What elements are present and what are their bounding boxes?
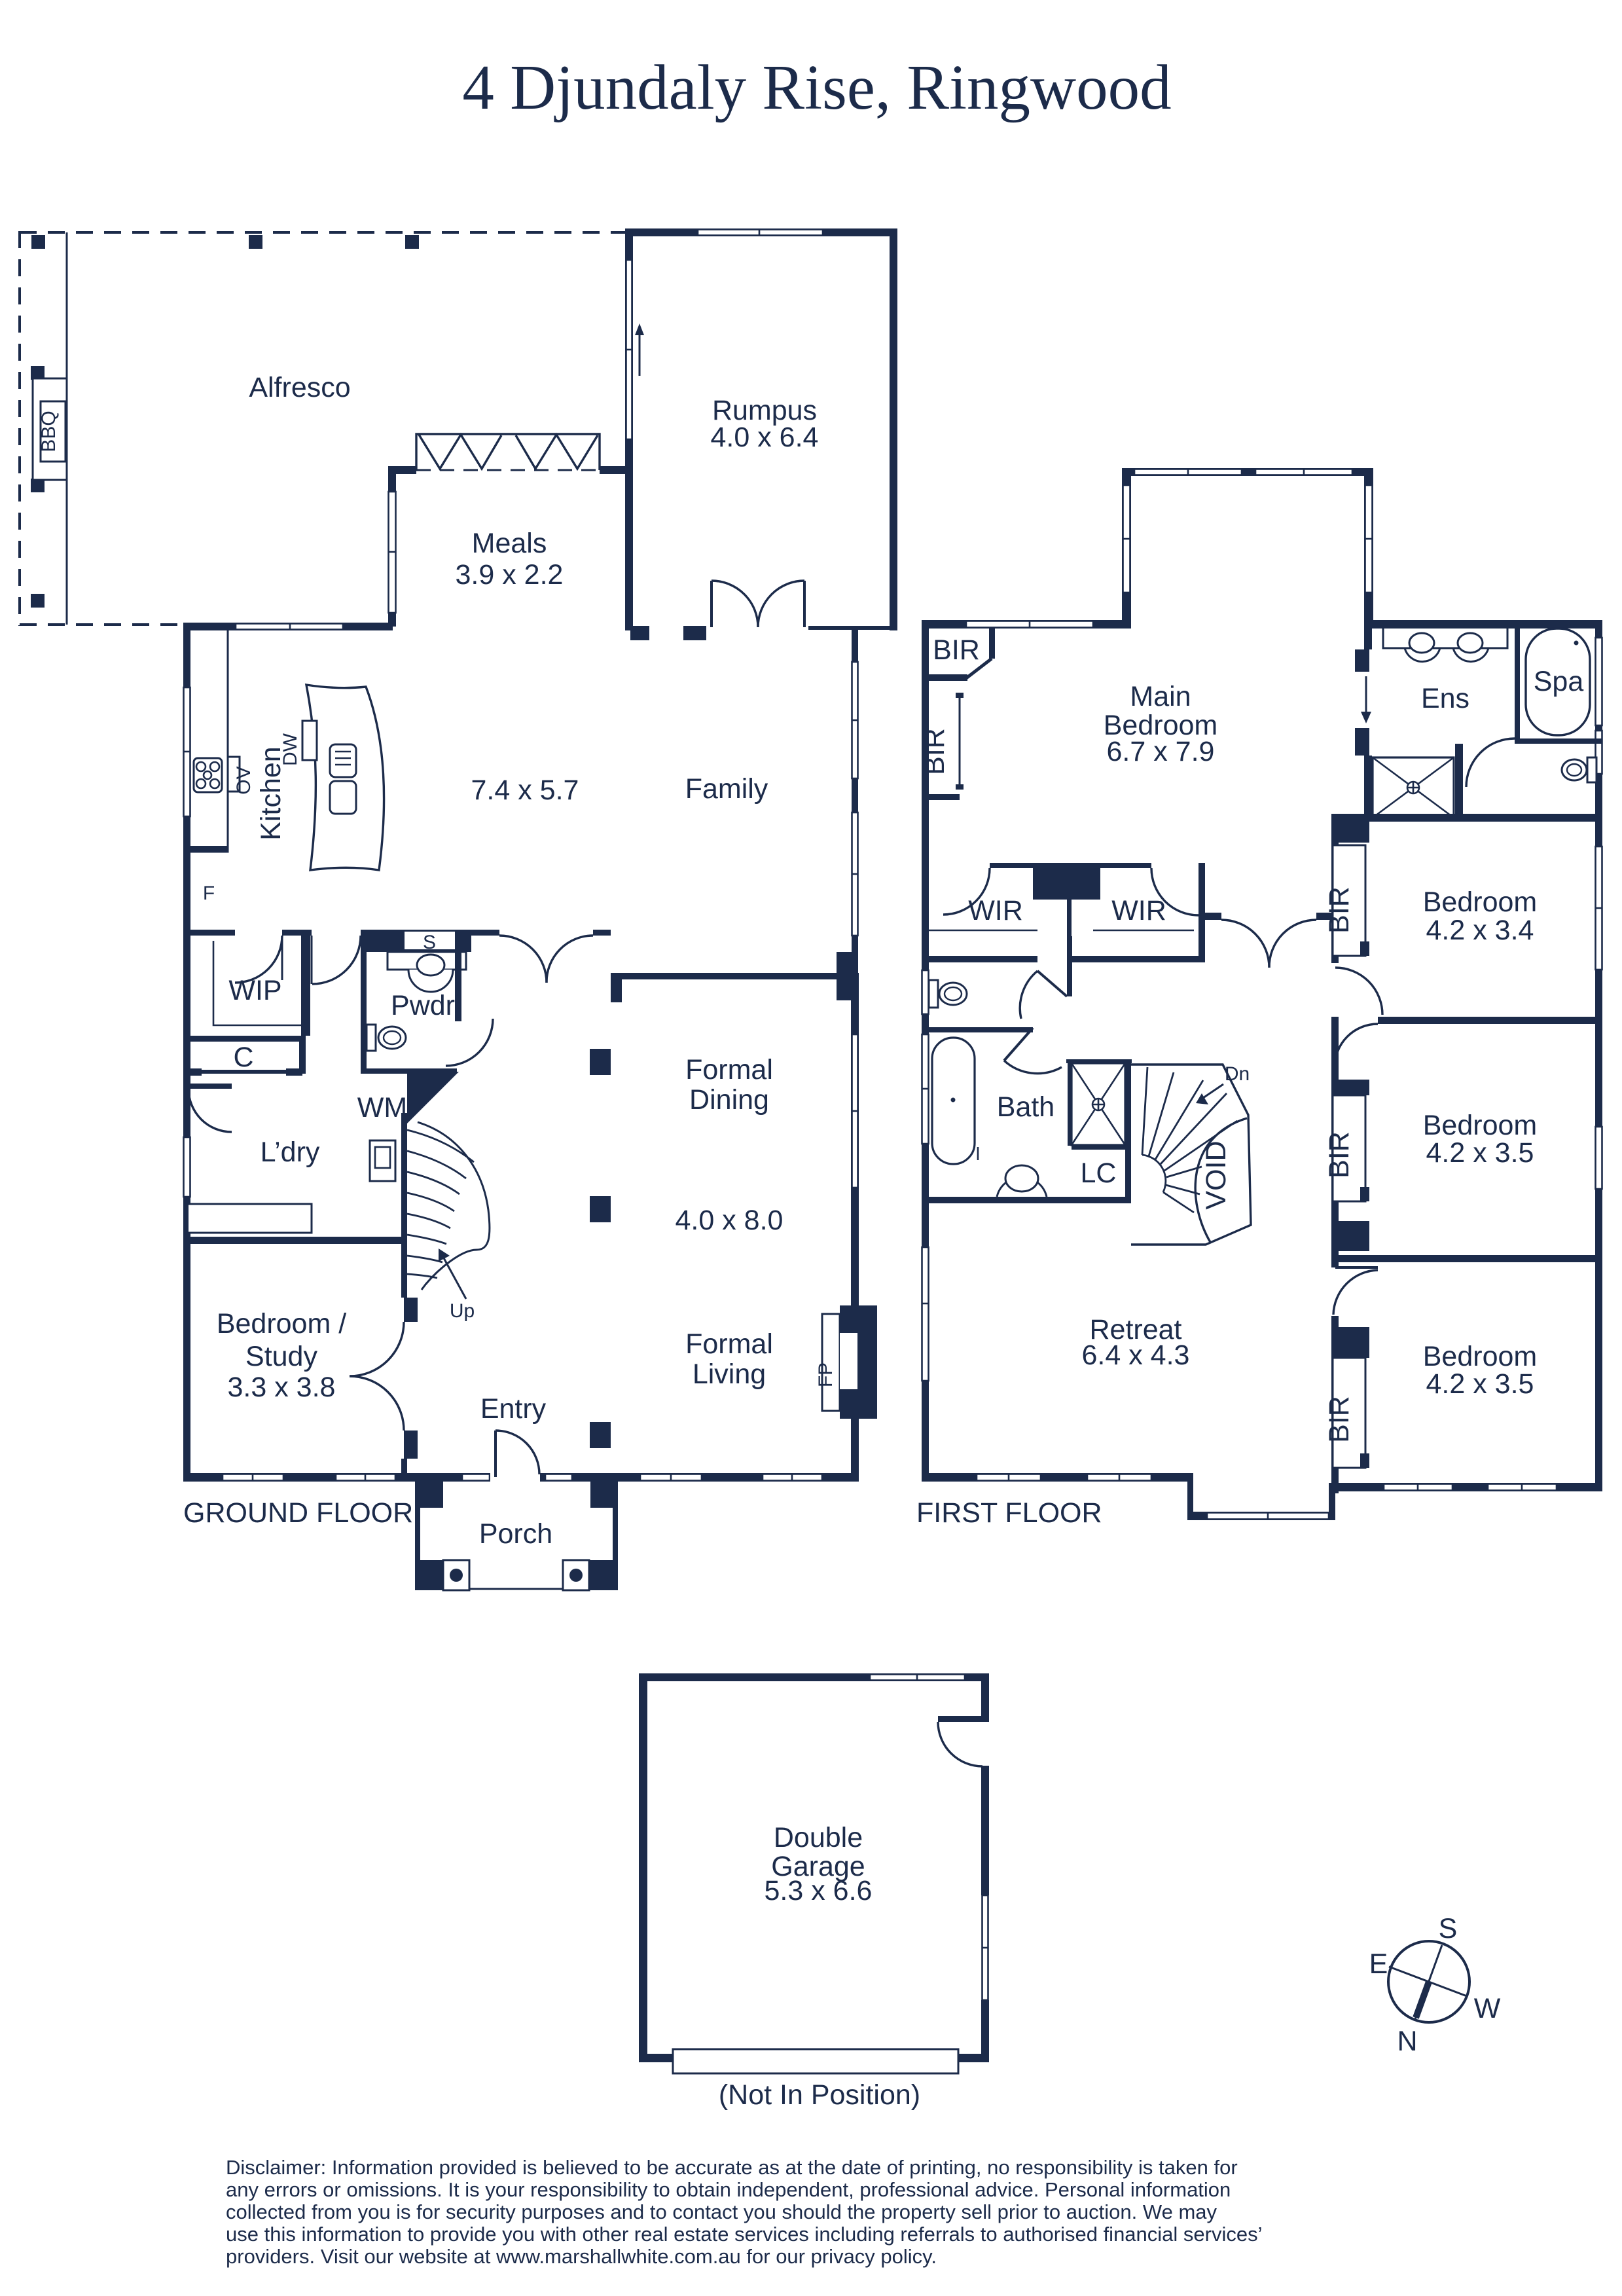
svg-text:WIR: WIR [1111, 895, 1166, 926]
svg-text:BIR: BIR [919, 728, 950, 775]
svg-text:Ens: Ens [1421, 683, 1469, 714]
svg-text:W: W [1474, 1993, 1501, 2024]
svg-text:4.0 x 8.0: 4.0 x 8.0 [676, 1205, 784, 1236]
svg-text:Alfresco: Alfresco [249, 372, 350, 403]
svg-text:4.2 x 3.4: 4.2 x 3.4 [1426, 915, 1534, 946]
svg-text:Meals: Meals [472, 528, 547, 559]
svg-text:Porch: Porch [479, 1518, 552, 1550]
svg-text:BBQ: BBQ [38, 410, 60, 452]
svg-text:Bedroom: Bedroom [1423, 1110, 1537, 1141]
svg-text:(Not In Position): (Not In Position) [719, 2079, 920, 2111]
svg-text:C: C [233, 1042, 253, 1073]
svg-text:GROUND FLOOR: GROUND FLOOR [183, 1497, 413, 1529]
svg-text:4.2 x 3.5: 4.2 x 3.5 [1426, 1137, 1534, 1169]
svg-text:Family: Family [685, 773, 768, 805]
svg-text:WM: WM [357, 1092, 407, 1123]
svg-text:BIR: BIR [1324, 1131, 1355, 1178]
svg-text:Bedroom /: Bedroom / [217, 1308, 346, 1339]
svg-text:L’dry: L’dry [261, 1137, 320, 1168]
svg-text:Main: Main [1130, 681, 1191, 712]
svg-text:providers. Visit our website a: providers. Visit our website at www.mars… [226, 2245, 937, 2268]
svg-text:S: S [423, 932, 436, 953]
svg-text:Double: Double [774, 1822, 863, 1853]
svg-text:VOID: VOID [1200, 1140, 1232, 1209]
svg-text:FIRST FLOOR: FIRST FLOOR [916, 1497, 1102, 1529]
svg-text:6.4 x 4.3: 6.4 x 4.3 [1082, 1339, 1190, 1371]
svg-text:4 Djundaly Rise, Ringwood: 4 Djundaly Rise, Ringwood [462, 52, 1171, 122]
svg-text:3.9 x 2.2: 3.9 x 2.2 [456, 559, 564, 591]
svg-text:Formal: Formal [685, 1328, 773, 1360]
svg-text:F: F [203, 883, 215, 904]
svg-text:7.4 x 5.7: 7.4 x 5.7 [471, 774, 579, 806]
svg-text:Formal: Formal [685, 1054, 773, 1085]
svg-text:BIR: BIR [1324, 1396, 1355, 1443]
svg-text:any errors or omissions. It is: any errors or omissions. It is your resp… [226, 2178, 1231, 2201]
svg-text:E: E [1369, 1948, 1388, 1980]
svg-text:Study: Study [245, 1341, 317, 1372]
svg-text:Bath: Bath [997, 1091, 1054, 1123]
svg-text:DW: DW [279, 733, 301, 766]
svg-text:3.3 x 3.8: 3.3 x 3.8 [228, 1372, 336, 1403]
svg-text:collected from you is for secu: collected from you is for security purpo… [226, 2200, 1217, 2223]
svg-text:BIR: BIR [1324, 886, 1355, 934]
svg-text:BIR: BIR [933, 634, 980, 666]
svg-text:S: S [1439, 1913, 1458, 1944]
svg-text:Spa: Spa [1534, 666, 1584, 697]
svg-text:Bedroom: Bedroom [1423, 1341, 1537, 1372]
svg-text:Dining: Dining [689, 1084, 769, 1116]
svg-text:Living: Living [693, 1358, 766, 1390]
svg-text:4.0 x 6.4: 4.0 x 6.4 [711, 422, 819, 453]
svg-text:use this information to provid: use this information to provide you with… [226, 2223, 1263, 2246]
svg-text:Disclaimer: Information provid: Disclaimer: Information provided is beli… [226, 2156, 1238, 2179]
svg-text:N: N [1397, 2026, 1417, 2057]
svg-text:FP: FP [815, 1362, 837, 1387]
svg-text:Up: Up [450, 1300, 475, 1322]
svg-text:Entry: Entry [480, 1393, 547, 1425]
svg-text:WIP: WIP [228, 975, 281, 1006]
svg-text:WIR: WIR [968, 895, 1023, 926]
svg-text:LC: LC [1081, 1157, 1117, 1189]
svg-text:6.7 x 7.9: 6.7 x 7.9 [1107, 736, 1215, 767]
svg-text:Dn: Dn [1225, 1063, 1250, 1085]
svg-text:Pwdr: Pwdr [391, 990, 455, 1021]
svg-text:OV: OV [233, 766, 255, 794]
svg-text:4.2 x 3.5: 4.2 x 3.5 [1426, 1368, 1534, 1400]
svg-text:5.3 x 6.6: 5.3 x 6.6 [765, 1875, 873, 1906]
svg-text:Bedroom: Bedroom [1423, 886, 1537, 918]
